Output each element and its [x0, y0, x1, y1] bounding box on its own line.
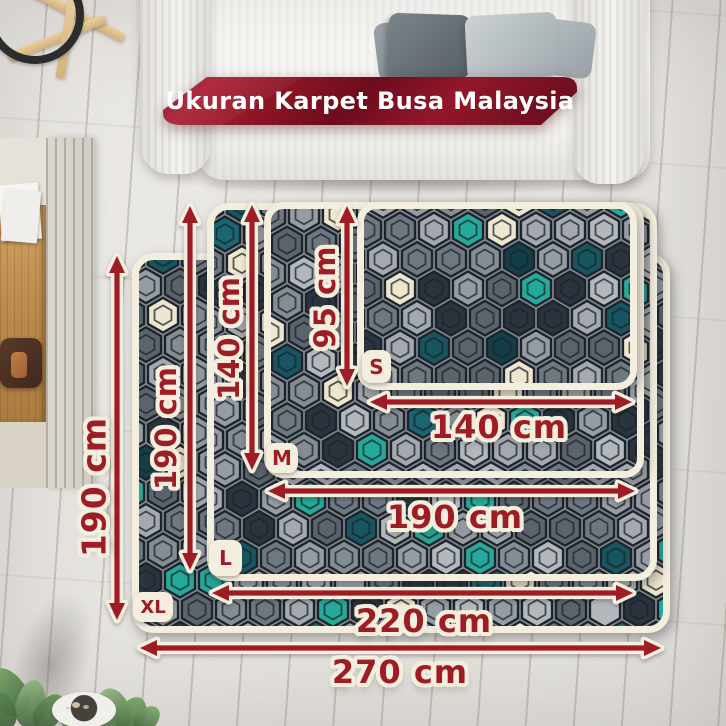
measurement-label-xl-height: 190 cm: [75, 417, 114, 557]
measurement-arrow-m-width: [268, 483, 635, 499]
measurement-label-l-width: 220 cm: [356, 602, 492, 640]
scene: 190 cm190 cm140 cm95 cm140 cm190 cm220 c…: [0, 0, 726, 726]
size-badge-s: S: [362, 350, 391, 383]
measurement-label-xl-width: 270 cm: [332, 653, 468, 691]
measurement-arrow-m-height: [244, 205, 260, 470]
measurement-label-s-width: 140 cm: [431, 408, 567, 446]
measurement-label-s-height: 95 cm: [308, 246, 342, 349]
measurement-label-m-width: 190 cm: [387, 498, 523, 536]
measurement-arrow-l-width: [212, 585, 633, 601]
title-banner: Ukuran Karpet Busa Malaysia: [163, 77, 577, 125]
size-badge-xl: XL: [133, 592, 173, 622]
size-badge-m: M: [266, 443, 298, 473]
measurement-label-m-height: 140 cm: [212, 276, 246, 400]
size-badge-l: L: [209, 540, 242, 576]
measurement-arrow-l-height: [182, 206, 198, 570]
measurement-label-l-height: 190 cm: [149, 366, 183, 490]
banner-title: Ukuran Karpet Busa Malaysia: [163, 77, 577, 125]
